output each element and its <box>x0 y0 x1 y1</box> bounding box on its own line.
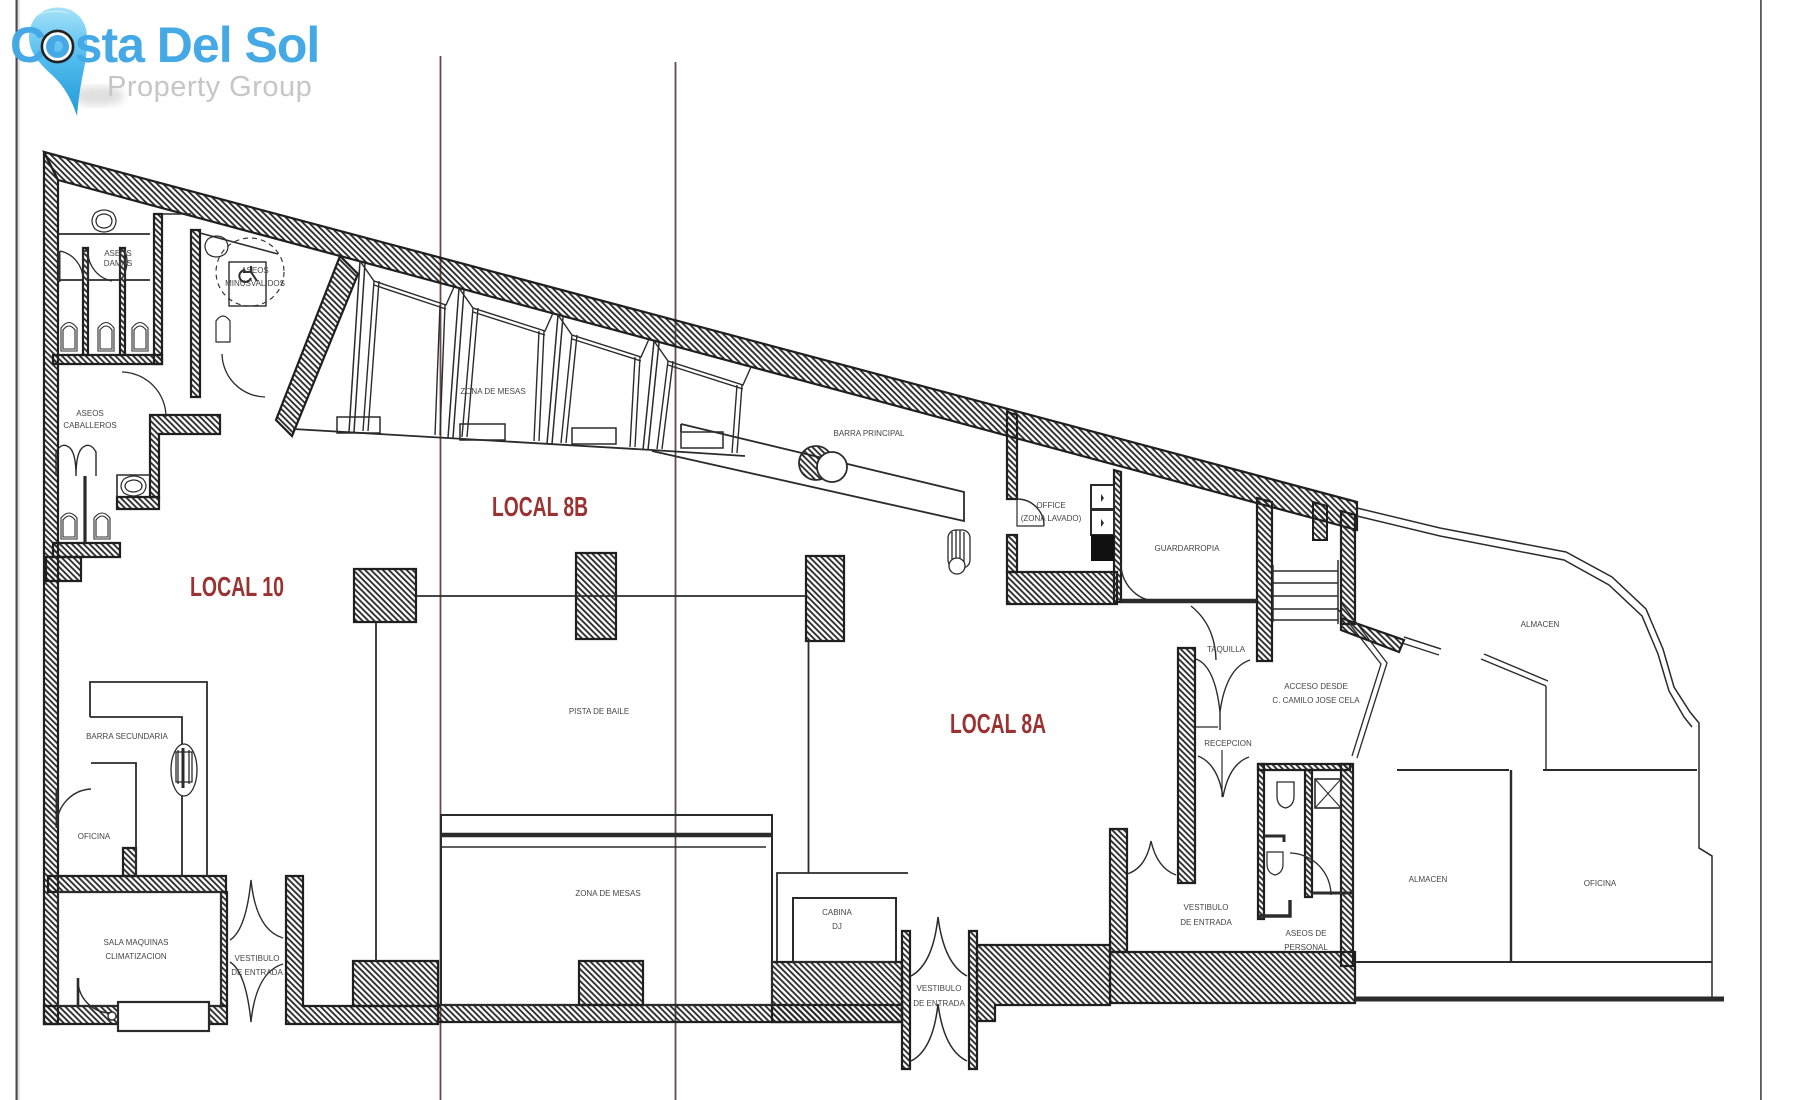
svg-text:DE ENTRADA: DE ENTRADA <box>1180 918 1232 927</box>
svg-text:ASEOS DE: ASEOS DE <box>1286 929 1327 938</box>
svg-text:TAQUILLA: TAQUILLA <box>1207 645 1246 654</box>
svg-text:BARRA PRINCIPAL: BARRA PRINCIPAL <box>834 429 906 438</box>
svg-text:(ZONA LAVADO): (ZONA LAVADO) <box>1021 514 1082 523</box>
svg-text:VESTIBULO: VESTIBULO <box>1184 903 1229 912</box>
svg-text:SALA MAQUINAS: SALA MAQUINAS <box>104 938 169 947</box>
svg-text:ZONA DE MESAS: ZONA DE MESAS <box>575 889 640 898</box>
svg-text:LOCAL 8B: LOCAL 8B <box>492 491 588 522</box>
svg-text:Costa Del Sol: Costa Del Sol <box>10 17 319 73</box>
svg-text:DJ: DJ <box>832 922 842 931</box>
svg-text:ASEOS: ASEOS <box>76 409 104 418</box>
svg-text:VESTIBULO: VESTIBULO <box>917 984 962 993</box>
svg-text:C. CAMILO JOSE CELA: C. CAMILO JOSE CELA <box>1272 696 1360 705</box>
svg-text:LOCAL 10: LOCAL 10 <box>190 571 284 602</box>
svg-text:OFFICE: OFFICE <box>1036 501 1065 510</box>
svg-text:LOCAL 8A: LOCAL 8A <box>950 708 1046 739</box>
svg-text:RECEPCION: RECEPCION <box>1204 739 1252 748</box>
svg-text:CABALLEROS: CABALLEROS <box>63 421 116 430</box>
svg-text:ALMACEN: ALMACEN <box>1521 620 1560 629</box>
svg-text:ACCESO DESDE: ACCESO DESDE <box>1284 682 1348 691</box>
svg-text:CABINA: CABINA <box>822 908 852 917</box>
svg-text:ASEOS: ASEOS <box>241 266 269 275</box>
svg-text:VESTIBULO: VESTIBULO <box>235 954 280 963</box>
svg-text:OFICINA: OFICINA <box>1584 879 1617 888</box>
svg-text:BARRA SECUNDARIA: BARRA SECUNDARIA <box>86 732 168 741</box>
svg-text:GUARDARROPIA: GUARDARROPIA <box>1155 544 1221 553</box>
svg-text:DE ENTRADA: DE ENTRADA <box>913 999 965 1008</box>
svg-text:PERSONAL: PERSONAL <box>1284 943 1328 952</box>
svg-text:CLIMATIZACION: CLIMATIZACION <box>105 952 166 961</box>
svg-text:DE ENTRADA: DE ENTRADA <box>231 968 283 977</box>
svg-text:OFICINA: OFICINA <box>78 832 111 841</box>
svg-text:PISTA DE BAILE: PISTA DE BAILE <box>569 707 629 716</box>
svg-text:Property Group: Property Group <box>107 71 312 103</box>
svg-text:MINUSVALIDOS: MINUSVALIDOS <box>225 279 285 288</box>
svg-text:ALMACEN: ALMACEN <box>1409 875 1448 884</box>
svg-text:DAMAS: DAMAS <box>104 259 132 268</box>
svg-text:ASEOS: ASEOS <box>104 249 132 258</box>
svg-text:ZONA DE MESAS: ZONA DE MESAS <box>460 387 525 396</box>
